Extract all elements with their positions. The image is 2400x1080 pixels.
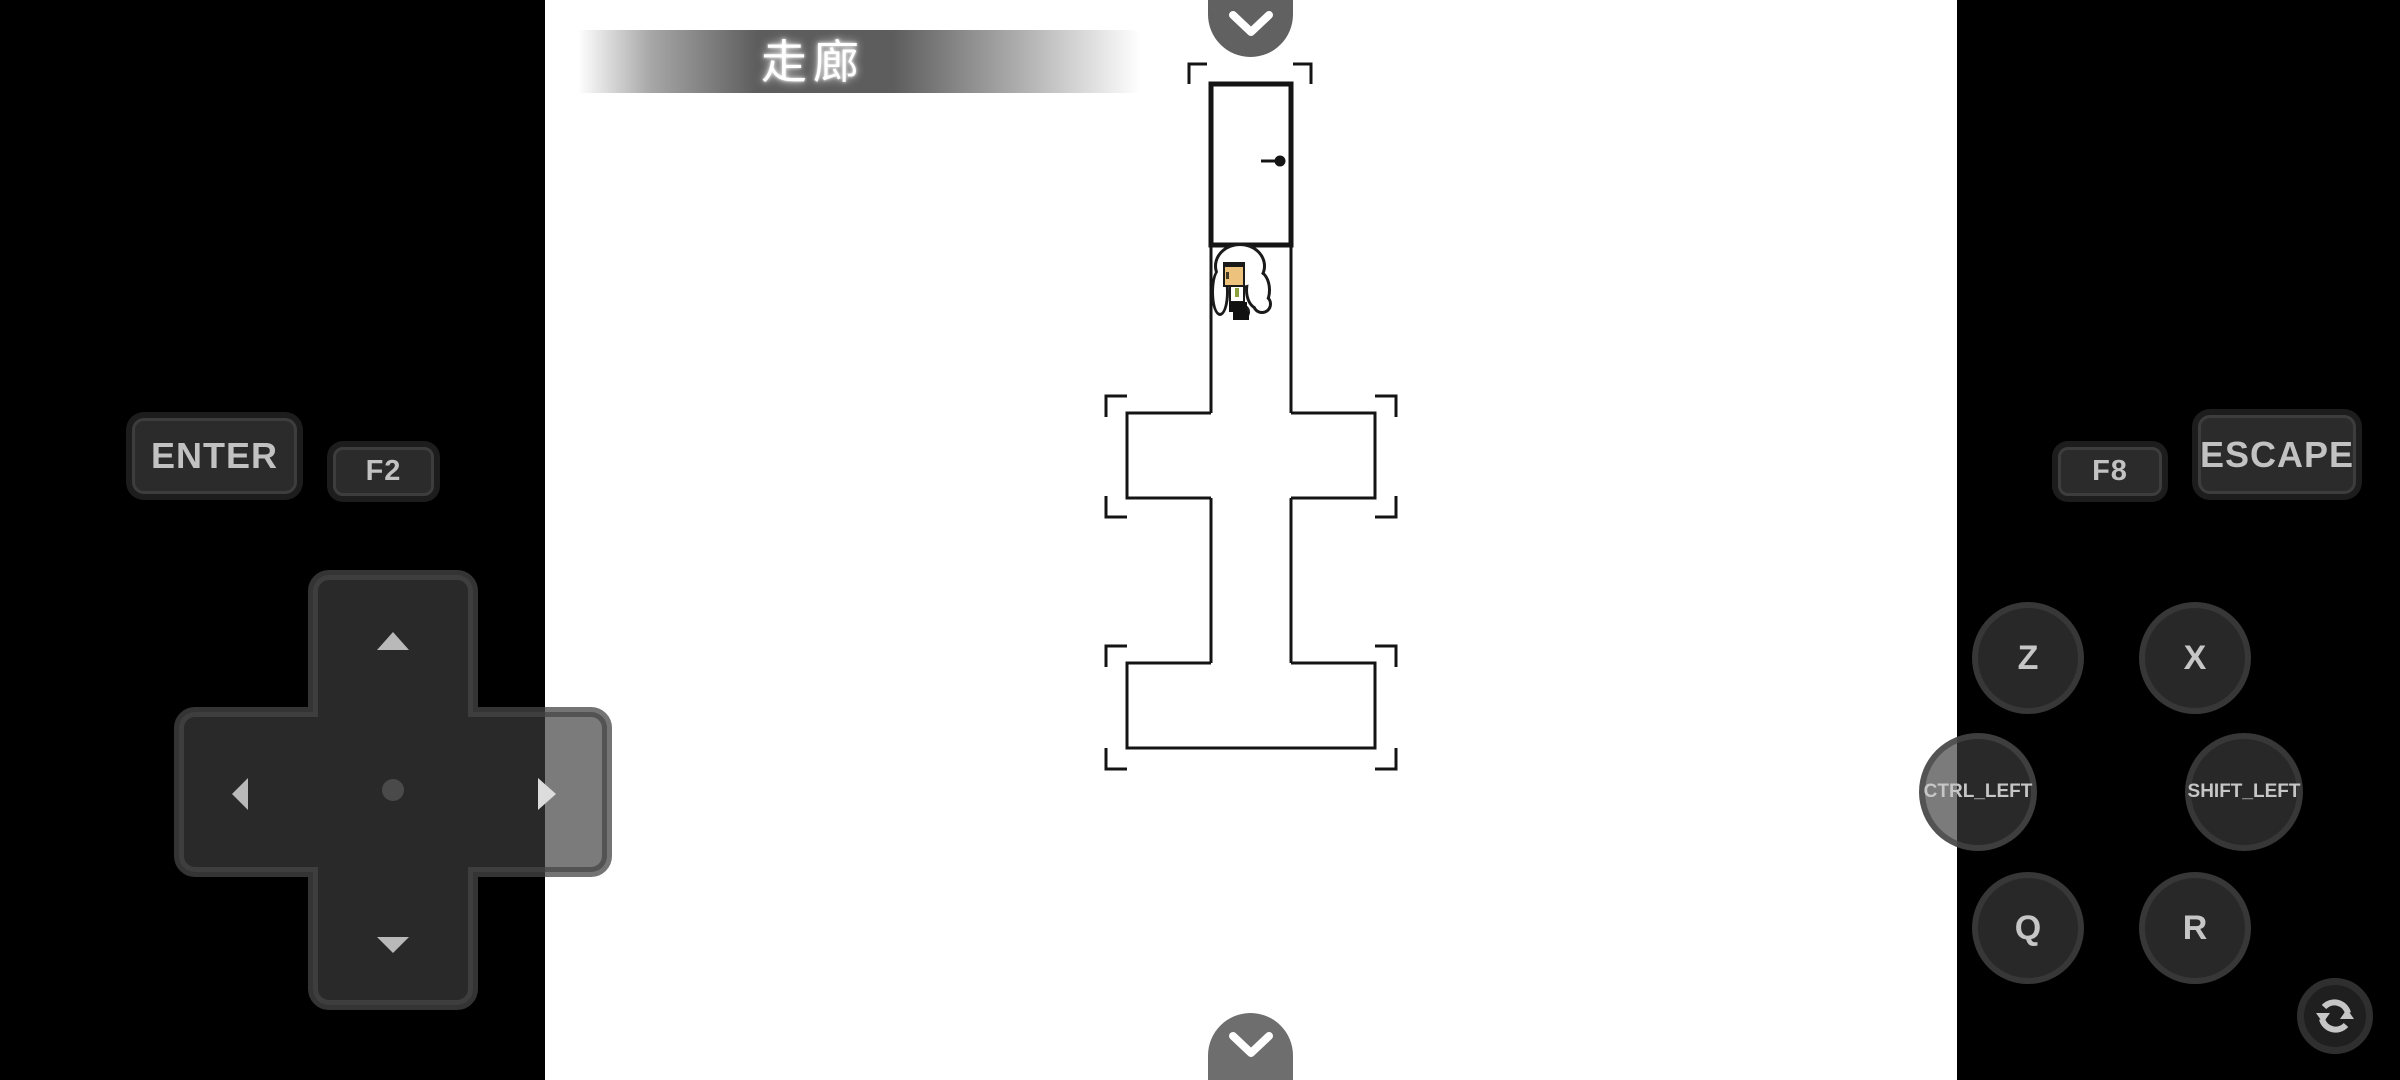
door [1211,84,1291,245]
dpad-center-dot [382,779,404,801]
rotate-sync-icon [2313,994,2357,1038]
r-button[interactable]: R [2139,872,2251,984]
ctrl-left-button[interactable]: CTRL_LEFT [1919,733,2037,851]
chevron-down-icon [1221,9,1281,41]
chevron-down-icon [1221,1030,1281,1062]
f8-key-button[interactable]: F8 [2058,447,2162,496]
door-knob-icon [1275,156,1286,167]
location-banner-text: 走廊 [761,39,865,85]
z-button[interactable]: Z [1972,602,2084,714]
map-corridor-drawing [545,0,1957,1080]
location-banner: 走廊 [578,30,1140,93]
x-button[interactable]: X [2139,602,2251,714]
character-sprite [1211,243,1272,320]
corridor-walls [1127,245,1375,748]
game-screen: 走廊 [545,0,1957,1080]
q-button[interactable]: Q [1972,872,2084,984]
shift-left-button[interactable]: SHIFT_LEFT [2185,733,2303,851]
escape-key-button[interactable]: ESCAPE [2198,415,2356,494]
enter-key-button[interactable]: ENTER [132,418,297,494]
rotate-screen-button[interactable] [2297,978,2373,1054]
dpad[interactable] [172,569,614,1011]
f2-key-button[interactable]: F2 [333,447,434,496]
